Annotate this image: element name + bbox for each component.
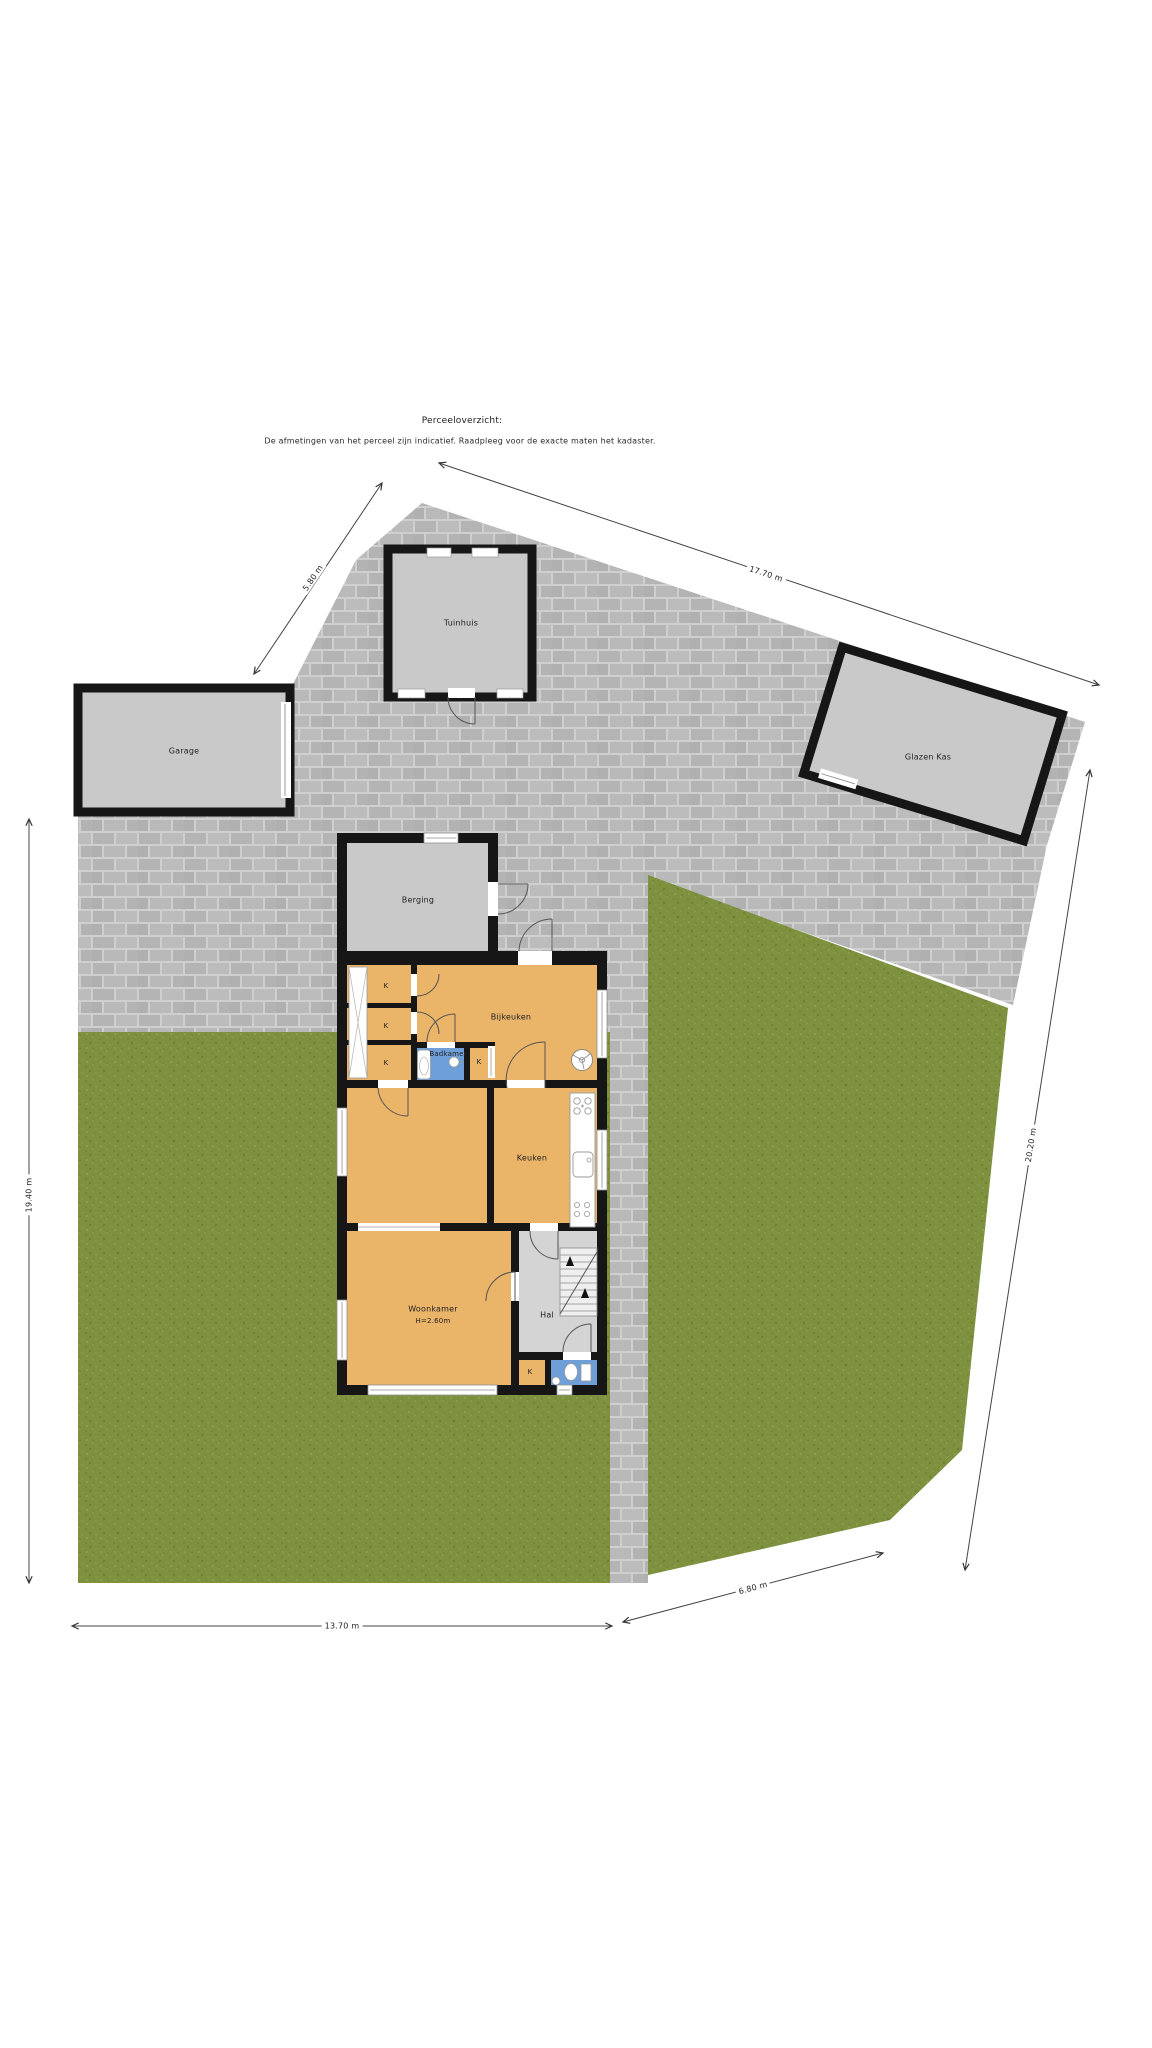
garage-label: Garage bbox=[169, 747, 200, 756]
closet-label-4: K bbox=[477, 1058, 482, 1066]
closet-label-2: K bbox=[384, 1022, 389, 1030]
wardrobe-symbol bbox=[349, 967, 367, 1078]
middle-left-room-floor bbox=[347, 1088, 487, 1231]
wc-sink bbox=[552, 1377, 560, 1385]
tuinhuis-door-opening bbox=[448, 688, 475, 698]
garage-door-opening bbox=[281, 702, 291, 798]
bathroom-sink bbox=[449, 1057, 459, 1067]
berging-label: Berging bbox=[402, 896, 434, 905]
closet-label-3: K bbox=[384, 1059, 389, 1067]
toilet bbox=[565, 1364, 578, 1381]
woonkamer-label: Woonkamer bbox=[408, 1305, 458, 1314]
tuinhuis-building bbox=[388, 548, 532, 724]
woonkamer-height-label: H=2.60m bbox=[416, 1317, 451, 1325]
site-plan-page: Perceeloverzicht: De afmetingen van het … bbox=[0, 0, 1152, 2048]
closet-label-1: K bbox=[384, 982, 389, 990]
site-plan-drawing bbox=[0, 0, 1152, 2048]
dimension-label-bottom: 13.70 m bbox=[322, 1622, 363, 1631]
bijkeuken-label: Bijkeuken bbox=[491, 1013, 531, 1022]
hal-label: Hal bbox=[540, 1311, 554, 1320]
glazen-kas-label: Glazen Kas bbox=[905, 753, 951, 762]
stairs bbox=[560, 1248, 597, 1316]
page-title: Perceeloverzicht: bbox=[422, 416, 503, 426]
kitchen-sink bbox=[573, 1152, 593, 1177]
badkamer-label: Badkamer bbox=[429, 1050, 466, 1058]
keuken-label: Keuken bbox=[517, 1154, 547, 1163]
tuinhuis-label: Tuinhuis bbox=[444, 619, 478, 628]
closet-label-5: K bbox=[528, 1368, 533, 1376]
dimension-label-left: 19.40 m bbox=[25, 1175, 34, 1216]
page-subtitle: De afmetingen van het perceel zijn indic… bbox=[264, 437, 655, 446]
